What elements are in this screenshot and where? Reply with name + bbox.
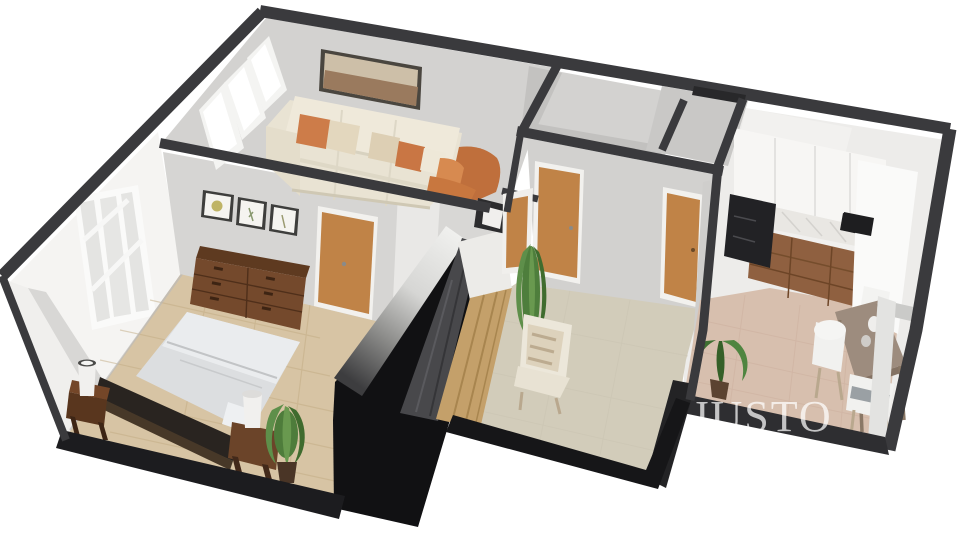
svg-text:JUSTO: JUSTO bbox=[691, 392, 832, 441]
